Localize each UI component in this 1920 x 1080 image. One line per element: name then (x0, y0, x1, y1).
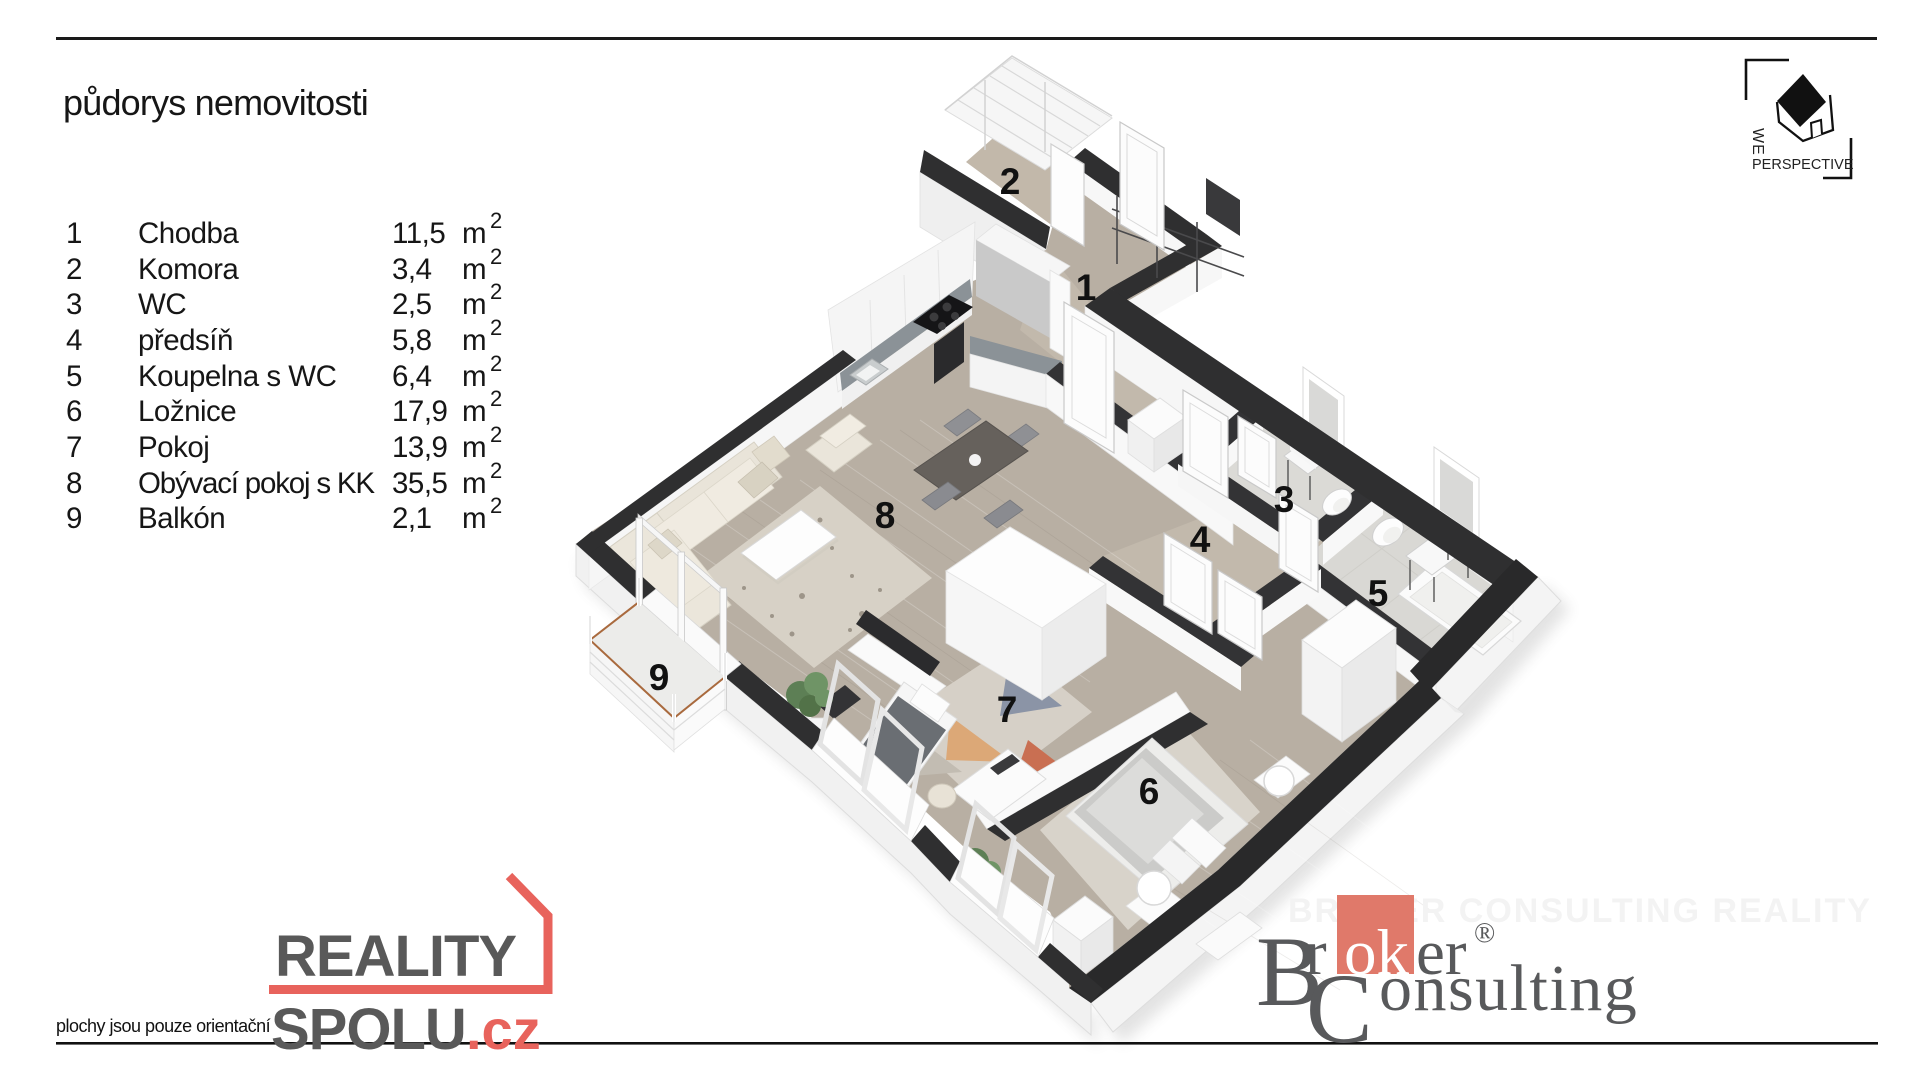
svg-text:REALITY: REALITY (275, 924, 516, 989)
svg-text:m: m (462, 324, 486, 357)
svg-text:předsíň: předsíň (138, 324, 233, 357)
svg-text:Koupelna s WC: Koupelna s WC (138, 360, 337, 393)
svg-text:2: 2 (66, 253, 82, 286)
svg-text:6,4: 6,4 (392, 360, 432, 393)
svg-text:m: m (462, 502, 486, 535)
svg-text:2: 2 (490, 386, 502, 411)
svg-text:Komora: Komora (138, 253, 239, 286)
svg-text:3: 3 (66, 288, 82, 321)
svg-text:3: 3 (1274, 479, 1295, 520)
svg-text:11,5: 11,5 (392, 217, 445, 250)
svg-text:2,1: 2,1 (392, 502, 432, 535)
svg-text:1: 1 (1076, 267, 1097, 308)
svg-text:13,9: 13,9 (392, 431, 448, 464)
svg-text:Pokoj: Pokoj (138, 431, 209, 464)
svg-text:5: 5 (1368, 573, 1389, 614)
svg-text:6: 6 (1139, 771, 1160, 812)
svg-text:C: C (1306, 953, 1373, 1064)
svg-text:8: 8 (875, 495, 896, 536)
svg-text:2: 2 (490, 279, 502, 304)
svg-text:2: 2 (490, 493, 502, 518)
svg-text:17,9: 17,9 (392, 395, 448, 428)
svg-text:®: ® (1474, 918, 1495, 949)
svg-text:3,4: 3,4 (392, 253, 432, 286)
svg-text:m: m (462, 360, 486, 393)
svg-text:7: 7 (66, 431, 82, 464)
svg-text:m: m (462, 288, 486, 321)
svg-text:m: m (462, 431, 486, 464)
svg-text:2: 2 (490, 422, 502, 447)
svg-text:onsulting: onsulting (1379, 952, 1638, 1025)
svg-text:35,5: 35,5 (392, 467, 448, 500)
svg-text:8: 8 (66, 467, 82, 500)
svg-text:WE: WE (1749, 128, 1766, 156)
svg-text:Obývací pokoj s KK: Obývací pokoj s KK (138, 467, 375, 500)
svg-text:2: 2 (490, 208, 502, 233)
svg-text:2,5: 2,5 (392, 288, 432, 321)
svg-text:m: m (462, 467, 486, 500)
svg-text:2: 2 (490, 458, 502, 483)
svg-text:WC: WC (138, 288, 186, 321)
svg-text:Balkón: Balkón (138, 502, 225, 535)
svg-text:9: 9 (66, 502, 82, 535)
svg-text:m: m (462, 395, 486, 428)
svg-text:2: 2 (490, 315, 502, 340)
svg-text:5,8: 5,8 (392, 324, 432, 357)
svg-text:Chodba: Chodba (138, 217, 239, 250)
svg-text:2: 2 (490, 351, 502, 376)
svg-text:m: m (462, 217, 486, 250)
svg-text:plochy jsou pouze orientační: plochy jsou pouze orientační (56, 1016, 271, 1036)
svg-text:4: 4 (1190, 519, 1211, 560)
svg-text:.cz: .cz (466, 998, 541, 1061)
svg-text:7: 7 (997, 689, 1018, 730)
svg-text:Ložnice: Ložnice (138, 395, 236, 428)
svg-text:5: 5 (66, 360, 82, 393)
svg-text:4: 4 (66, 324, 82, 357)
svg-text:2: 2 (490, 244, 502, 269)
svg-text:PERSPECTIVE: PERSPECTIVE (1752, 157, 1854, 173)
svg-text:2: 2 (1000, 161, 1021, 202)
svg-text:1: 1 (66, 217, 82, 250)
svg-text:9: 9 (649, 657, 670, 698)
svg-text:půdorys nemovitosti: půdorys nemovitosti (63, 82, 368, 123)
svg-text:6: 6 (66, 395, 82, 428)
svg-text:SPOLU: SPOLU (271, 997, 466, 1062)
svg-text:m: m (462, 253, 486, 286)
